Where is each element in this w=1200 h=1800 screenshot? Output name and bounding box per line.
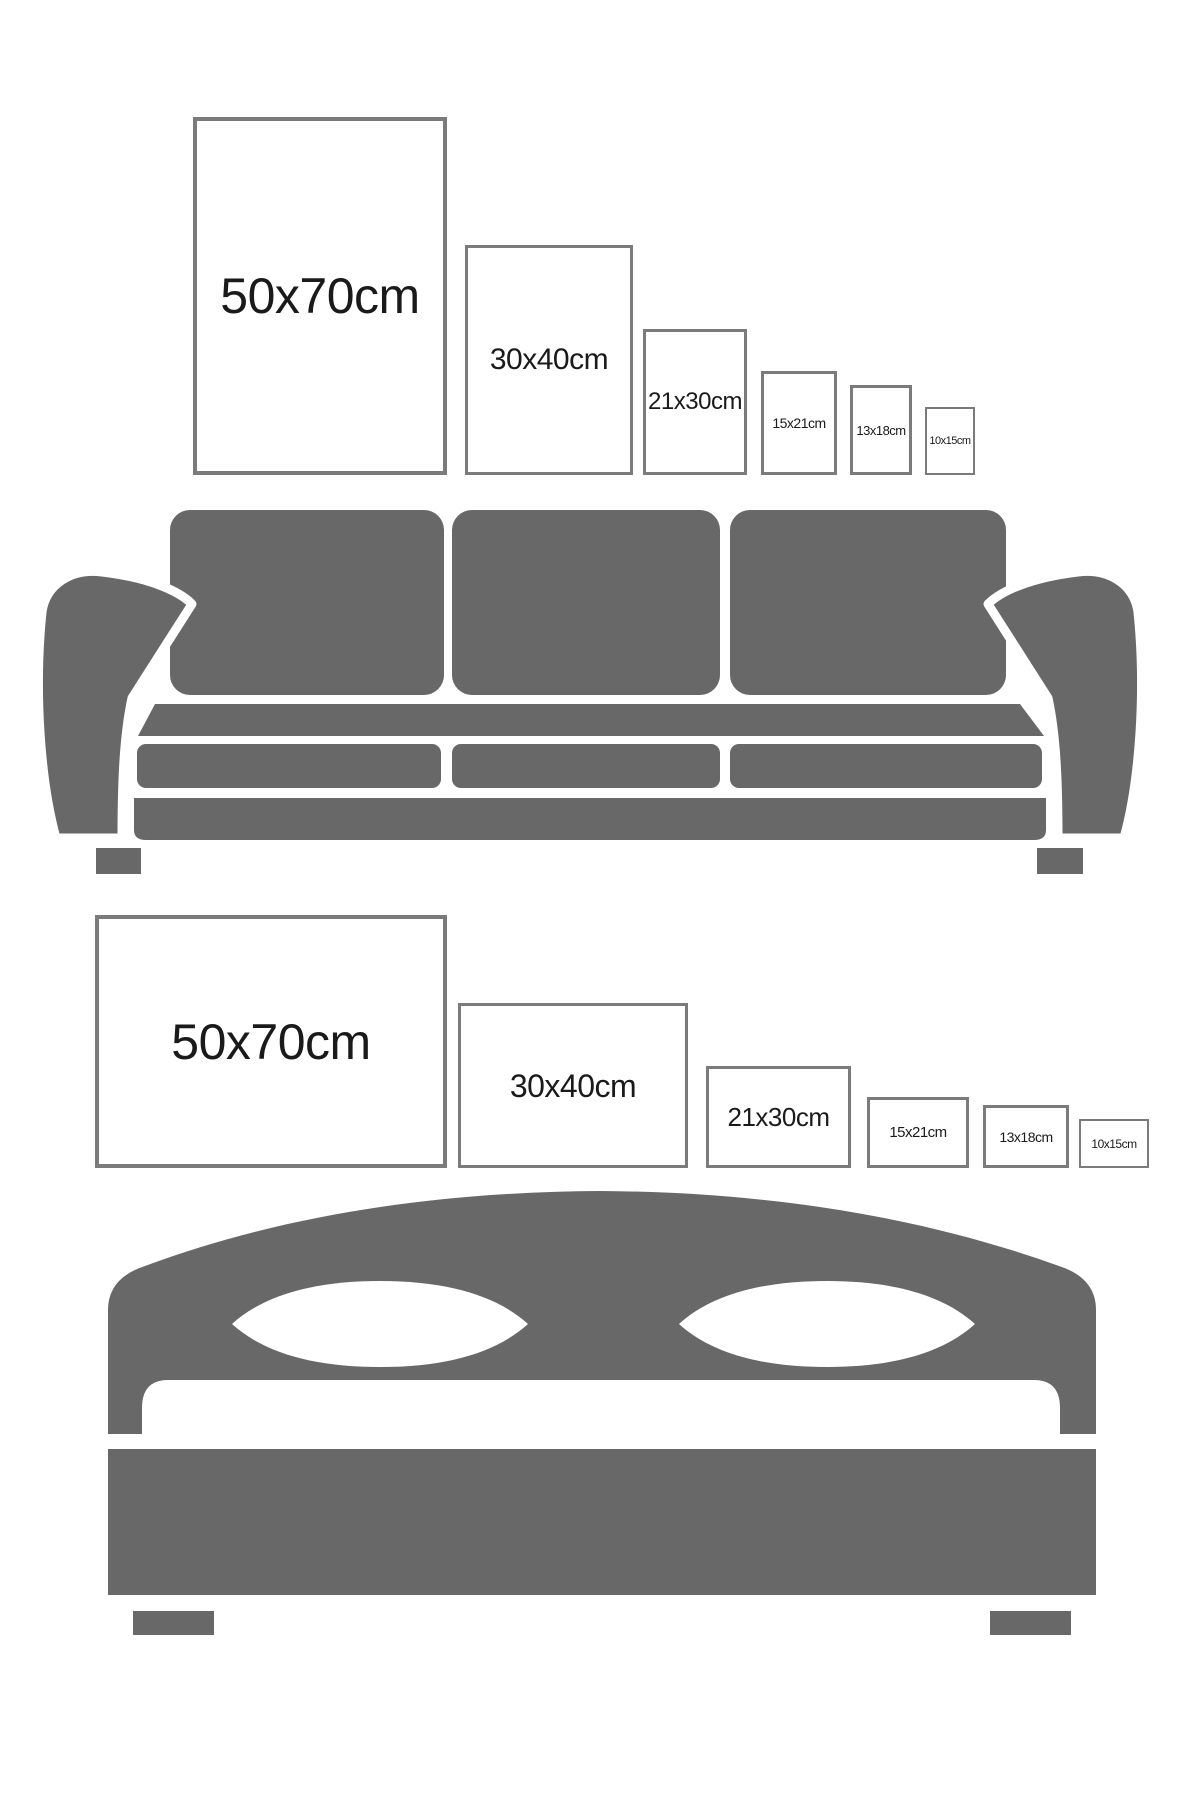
sofa-back-cushion	[170, 510, 444, 695]
frame-size-label: 13x18cm	[999, 1130, 1052, 1144]
frame-13x18-landscape: 13x18cm	[983, 1105, 1069, 1168]
size-guide-canvas: 50x70cm 30x40cm 21x30cm 15x21cm 13x18cm …	[0, 0, 1200, 1800]
frame-size-label: 50x70cm	[171, 1017, 370, 1067]
sofa-seat-cushion	[730, 744, 1042, 788]
bed-left-leg	[133, 1611, 214, 1635]
frame-10x15-landscape: 10x15cm	[1079, 1119, 1149, 1168]
frame-21x30-landscape: 21x30cm	[706, 1066, 851, 1168]
sofa-back-cushion	[730, 510, 1006, 695]
frame-size-label: 13x18cm	[856, 424, 905, 437]
frame-size-label: 10x15cm	[929, 436, 970, 447]
frame-size-label: 50x70cm	[220, 271, 419, 321]
frame-size-label: 10x15cm	[1091, 1138, 1136, 1150]
bed-base	[108, 1449, 1096, 1595]
sofa-right-leg	[1037, 848, 1083, 874]
sofa-back-cushion	[452, 510, 720, 695]
frame-15x21-portrait: 15x21cm	[761, 371, 837, 475]
frame-13x18-portrait: 13x18cm	[850, 385, 912, 475]
sofa-seat-deck	[138, 704, 1044, 736]
frame-size-label: 30x40cm	[510, 1070, 636, 1102]
bed-icon	[0, 1180, 1200, 1700]
frame-size-label: 15x21cm	[889, 1125, 946, 1140]
frame-size-label: 15x21cm	[772, 416, 825, 430]
frame-15x21-landscape: 15x21cm	[867, 1097, 969, 1168]
sofa-icon	[0, 480, 1200, 900]
sofa-base	[134, 798, 1046, 840]
frame-10x15-portrait: 10x15cm	[925, 407, 975, 475]
frame-30x40-portrait: 30x40cm	[465, 245, 633, 475]
sofa-seat-cushion	[137, 744, 441, 788]
frame-30x40-landscape: 30x40cm	[458, 1003, 688, 1168]
frame-21x30-portrait: 21x30cm	[643, 329, 747, 475]
frame-50x70-portrait: 50x70cm	[193, 117, 447, 475]
sofa-seat-cushion	[452, 744, 720, 788]
frame-50x70-landscape: 50x70cm	[95, 915, 447, 1168]
frame-size-label: 21x30cm	[728, 1104, 830, 1130]
frame-size-label: 21x30cm	[648, 390, 742, 414]
frame-size-label: 30x40cm	[490, 345, 608, 375]
sofa-left-leg	[96, 848, 141, 874]
bed-right-leg	[990, 1611, 1071, 1635]
